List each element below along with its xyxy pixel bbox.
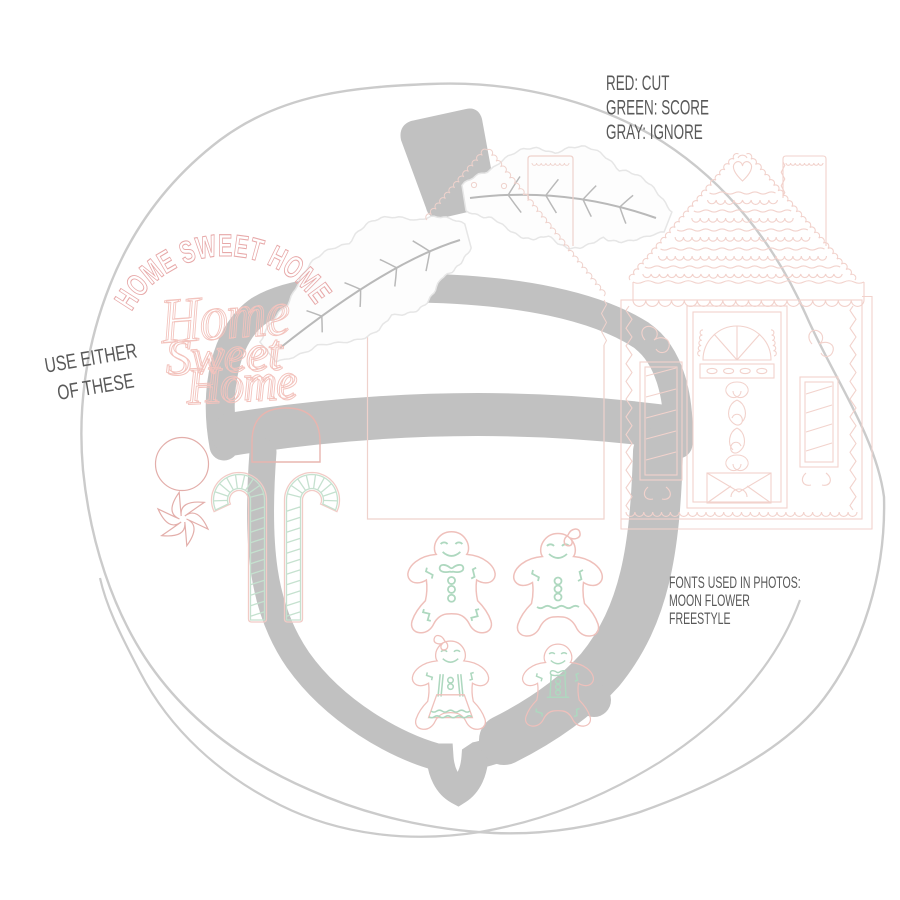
svg-text:Home: Home bbox=[184, 352, 298, 415]
svg-text:GREEN: SCORE: GREEN: SCORE bbox=[606, 95, 709, 119]
svg-text:GRAY: IGNORE: GRAY: IGNORE bbox=[606, 120, 703, 144]
svg-text:MOON FLOWER: MOON FLOWER bbox=[669, 591, 750, 610]
svg-text:FREESTYLE: FREESTYLE bbox=[669, 609, 731, 628]
svg-text:RED: CUT: RED: CUT bbox=[606, 71, 670, 95]
svg-text:FONTS USED IN PHOTOS:: FONTS USED IN PHOTOS: bbox=[669, 573, 801, 592]
